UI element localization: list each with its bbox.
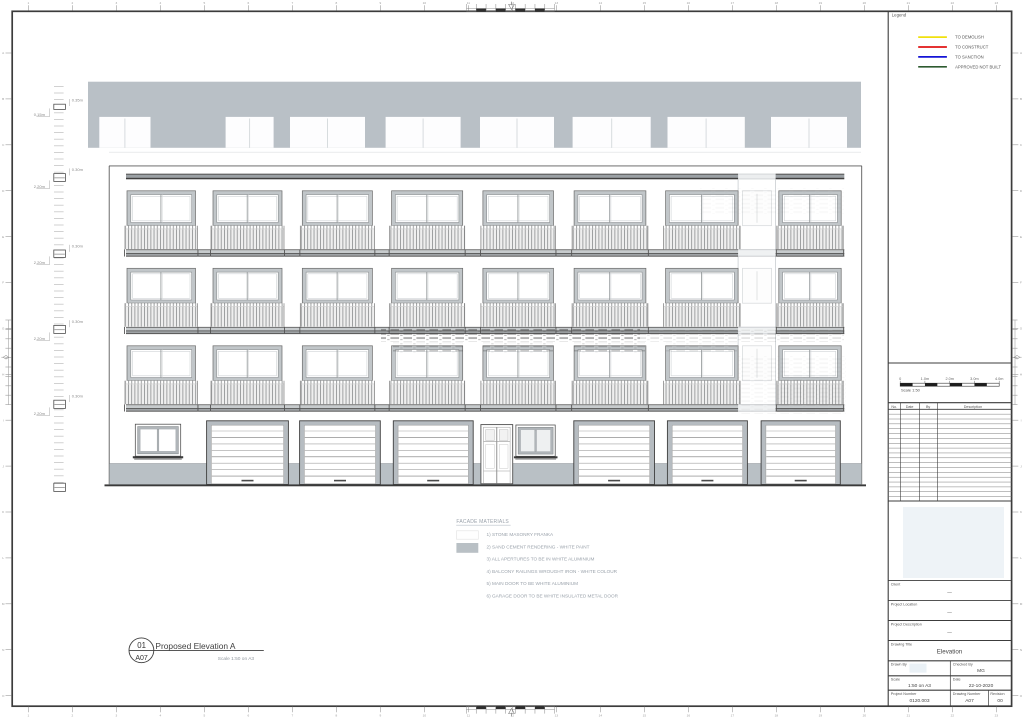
svg-text:16: 16 [687, 1, 691, 5]
svg-text:4: 4 [160, 1, 162, 5]
svg-text:3: 3 [116, 1, 118, 5]
svg-text:2.20m: 2.20m [34, 260, 46, 265]
svg-text:2.20m: 2.20m [34, 336, 46, 341]
svg-text:0.30m: 0.30m [72, 319, 84, 324]
svg-text:A07: A07 [135, 655, 148, 662]
svg-text:14: 14 [599, 714, 603, 718]
svg-text:0.30m: 0.30m [72, 394, 84, 399]
svg-text:2) SAND CEMENT RENDERING - WHI: 2) SAND CEMENT RENDERING - WHITE PAINT [487, 544, 590, 549]
svg-text:F: F [1020, 281, 1022, 285]
svg-text:18: 18 [775, 1, 779, 5]
svg-text:H: H [1020, 373, 1022, 377]
svg-text:01: 01 [137, 641, 146, 650]
svg-text:19: 19 [819, 1, 823, 5]
svg-text:22: 22 [951, 1, 955, 5]
svg-text:TO DEMOLISH: TO DEMOLISH [955, 35, 984, 40]
svg-text:17: 17 [731, 714, 735, 718]
svg-text:3: 3 [116, 714, 118, 718]
svg-text:0: 0 [899, 377, 901, 381]
svg-text:6: 6 [248, 714, 250, 718]
svg-text:Checked By: Checked By [953, 663, 973, 667]
svg-text:8: 8 [336, 714, 338, 718]
svg-text:4: 4 [160, 714, 162, 718]
svg-text:11: 11 [467, 714, 470, 718]
svg-text:By: By [926, 405, 930, 409]
svg-text:11: 11 [467, 1, 470, 5]
svg-text:M: M [1020, 602, 1023, 606]
svg-text:Date: Date [953, 678, 961, 682]
svg-text:FACADE MATERIALS: FACADE MATERIALS [456, 519, 509, 525]
svg-text:10: 10 [423, 1, 427, 5]
svg-text:Elevation: Elevation [937, 649, 963, 656]
svg-text:00: 00 [997, 698, 1003, 704]
svg-text:3) ALL APERTURES TO BE IN WHI: 3) ALL APERTURES TO BE IN WHITE ALUMINIU… [487, 557, 595, 562]
svg-text:4.0m: 4.0m [995, 377, 1003, 381]
svg-text:7: 7 [292, 1, 294, 5]
svg-text:1: 1 [28, 1, 30, 5]
svg-text:F: F [2, 281, 4, 285]
svg-text:Revision: Revision [990, 692, 1004, 696]
svg-text:2.0m: 2.0m [945, 377, 953, 381]
svg-text:Date: Date [906, 405, 914, 409]
svg-text:14: 14 [599, 1, 603, 5]
svg-text:1.0m: 1.0m [921, 377, 929, 381]
svg-text:Drawn By: Drawn By [891, 663, 907, 667]
svg-text:0.30m: 0.30m [72, 243, 84, 248]
svg-text:Proposed Elevation A: Proposed Elevation A [155, 641, 235, 651]
svg-text:Project Description: Project Description [891, 623, 922, 627]
svg-text:18: 18 [775, 714, 779, 718]
svg-text:5: 5 [204, 1, 206, 5]
svg-text:16: 16 [687, 714, 691, 718]
svg-text:L: L [2, 556, 4, 560]
svg-text:5: 5 [204, 714, 206, 718]
svg-text:0120.003: 0120.003 [909, 698, 929, 704]
svg-text:9: 9 [380, 1, 382, 5]
svg-text:2: 2 [72, 1, 74, 5]
svg-text:6: 6 [248, 1, 250, 5]
svg-text:1: 1 [28, 714, 30, 718]
svg-text:M: M [2, 602, 5, 606]
svg-text:9: 9 [380, 714, 382, 718]
svg-text:10: 10 [423, 714, 427, 718]
svg-text:—: — [947, 630, 952, 635]
svg-text:2: 2 [72, 714, 74, 718]
svg-text:L: L [1020, 556, 1022, 560]
svg-text:8: 8 [336, 1, 338, 5]
svg-text:6) GARAGE DOOR TO BE WHITE INS: 6) GARAGE DOOR TO BE WHITE INSULATED MET… [487, 594, 619, 599]
svg-text:7: 7 [292, 714, 294, 718]
svg-text:H: H [2, 373, 4, 377]
svg-text:3.0m: 3.0m [970, 377, 978, 381]
svg-text:13: 13 [555, 714, 559, 718]
svg-text:A07: A07 [965, 698, 974, 704]
svg-text:22: 22 [951, 714, 955, 718]
svg-text:0.35m: 0.35m [72, 98, 84, 103]
svg-text:23: 23 [995, 1, 999, 5]
svg-text:E: E [1020, 235, 1022, 239]
svg-text:Project Number: Project Number [891, 692, 917, 696]
svg-text:13: 13 [555, 1, 559, 5]
svg-text:TO CONSTRUCT: TO CONSTRUCT [955, 45, 989, 50]
svg-text:Description: Description [964, 405, 982, 409]
svg-text:4) BALCONY RAILINGS WROUGHT IR: 4) BALCONY RAILINGS WROUGHT IRON - WHITE… [487, 569, 618, 574]
svg-text:0.15m: 0.15m [34, 112, 46, 117]
svg-text:19: 19 [819, 714, 823, 718]
svg-text:2.20m: 2.20m [34, 184, 46, 189]
svg-text:22-10-2020: 22-10-2020 [969, 683, 994, 689]
svg-text:—: — [947, 610, 952, 615]
svg-text:21: 21 [907, 714, 911, 718]
svg-text:0.30m: 0.30m [72, 167, 84, 172]
svg-text:I: I [3, 418, 4, 422]
svg-text:MG: MG [977, 668, 985, 674]
svg-text:Project Location: Project Location [891, 602, 917, 606]
svg-text:20: 20 [863, 1, 867, 5]
svg-text:Drawing Title: Drawing Title [891, 643, 912, 647]
svg-text:Legend: Legend [892, 13, 907, 18]
svg-text:I: I [1021, 418, 1022, 422]
svg-text:17: 17 [731, 1, 735, 5]
svg-text:20: 20 [863, 714, 867, 718]
svg-text:Client: Client [891, 582, 900, 586]
svg-text:TO SANCTION: TO SANCTION [955, 55, 984, 60]
svg-text:Scale 1:50: Scale 1:50 [901, 388, 921, 393]
svg-text:15: 15 [643, 1, 647, 5]
svg-text:B: B [1020, 97, 1022, 101]
svg-text:Drawing Number: Drawing Number [953, 692, 981, 696]
svg-text:N: N [1020, 648, 1022, 652]
svg-text:N: N [2, 648, 4, 652]
svg-text:Scale 1:50 on A3: Scale 1:50 on A3 [218, 656, 255, 662]
svg-text:1) STONE MASONRY FRANKA: 1) STONE MASONRY FRANKA [487, 532, 555, 537]
svg-text:23: 23 [995, 714, 999, 718]
svg-text:No.: No. [891, 405, 897, 409]
svg-text:5) MAIN DOOR TO BE WHITE ALUMI: 5) MAIN DOOR TO BE WHITE ALUMINIUM [487, 581, 579, 586]
svg-text:2.20m: 2.20m [34, 411, 46, 416]
svg-text:B: B [2, 97, 4, 101]
svg-text:Scale: Scale [891, 678, 900, 682]
svg-text:1:50 on A3: 1:50 on A3 [908, 683, 931, 689]
svg-text:E: E [2, 235, 4, 239]
svg-text:15: 15 [643, 714, 647, 718]
svg-text:21: 21 [907, 1, 911, 5]
svg-text:—: — [947, 589, 952, 594]
svg-text:APPROVED NOT BUILT: APPROVED NOT BUILT [955, 64, 1001, 69]
